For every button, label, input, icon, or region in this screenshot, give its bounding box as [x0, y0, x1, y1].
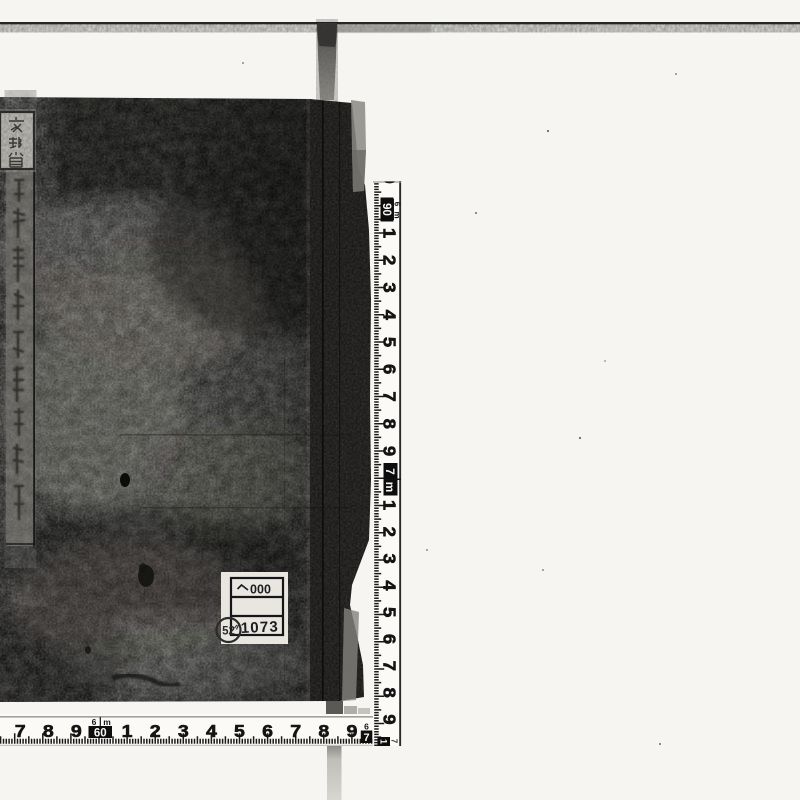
svg-text:6: 6: [262, 721, 273, 741]
svg-text:90: 90: [380, 203, 392, 216]
svg-text:5: 5: [380, 337, 399, 347]
svg-text:3: 3: [178, 721, 189, 741]
svg-text:9: 9: [71, 721, 82, 741]
svg-text:4: 4: [380, 310, 399, 320]
svg-text:2: 2: [380, 527, 399, 537]
svg-text:4: 4: [380, 580, 399, 590]
svg-text:m: m: [383, 482, 397, 493]
svg-text:9: 9: [380, 446, 399, 456]
svg-text:9: 9: [346, 721, 357, 741]
svg-text:1: 1: [380, 500, 399, 510]
svg-text:7: 7: [290, 721, 301, 741]
svg-text:m: m: [103, 717, 111, 727]
svg-text:6: 6: [380, 634, 399, 644]
svg-text:5: 5: [234, 721, 245, 741]
svg-text:000: 000: [250, 583, 271, 597]
svg-text:2: 2: [380, 255, 399, 265]
svg-text:3: 3: [380, 553, 399, 563]
svg-text:2: 2: [150, 721, 161, 741]
svg-text:1: 1: [379, 739, 389, 744]
svg-text:5: 5: [380, 607, 399, 617]
svg-text:7: 7: [390, 739, 399, 744]
svg-text:4: 4: [206, 721, 218, 741]
svg-text:7: 7: [383, 468, 397, 475]
svg-text:1: 1: [380, 228, 399, 238]
svg-text:1: 1: [122, 721, 133, 741]
svg-text:60: 60: [94, 728, 107, 740]
svg-text:8: 8: [43, 721, 54, 741]
svg-text:8: 8: [380, 419, 399, 429]
svg-text:8: 8: [318, 721, 329, 741]
svg-text:7: 7: [363, 732, 369, 744]
svg-text:8: 8: [380, 687, 399, 697]
svg-text:7: 7: [15, 721, 26, 741]
svg-text:9: 9: [380, 714, 399, 724]
svg-text:1073: 1073: [240, 618, 278, 637]
svg-text:6: 6: [364, 722, 369, 732]
svg-text:6: 6: [92, 717, 97, 727]
svg-text:7: 7: [380, 661, 399, 671]
svg-text:7: 7: [380, 391, 399, 401]
svg-text:3: 3: [380, 282, 399, 292]
svg-text:6: 6: [380, 364, 399, 374]
svg-text:52: 52: [222, 626, 235, 638]
